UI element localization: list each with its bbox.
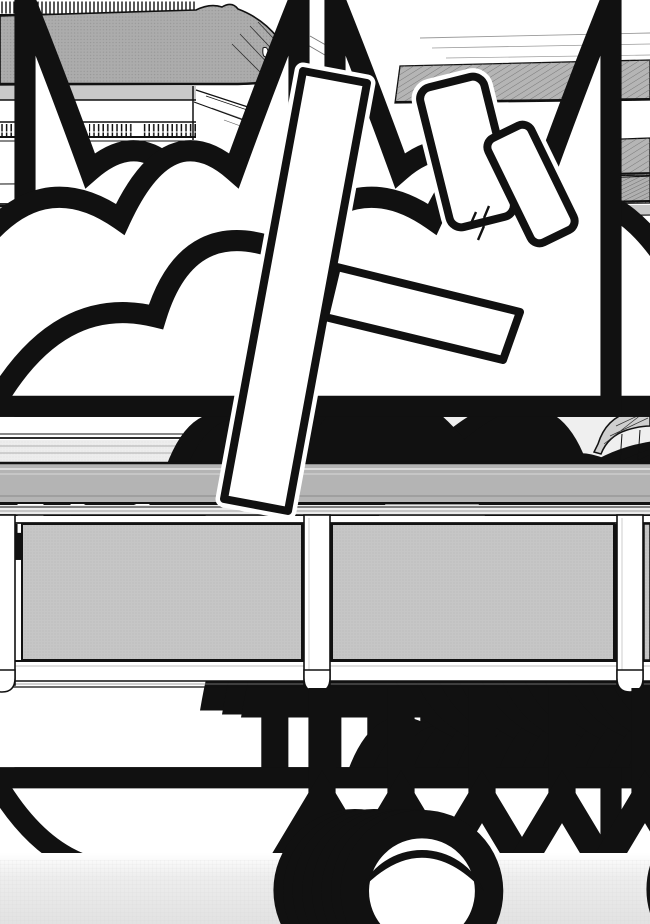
palace-scene bbox=[0, 0, 650, 924]
wall-pillar bbox=[0, 515, 15, 692]
manga-page: ド bbox=[0, 0, 650, 924]
wall-pillar bbox=[617, 515, 643, 692]
wall-pillar bbox=[304, 515, 330, 692]
wall-panel-sliver bbox=[644, 524, 650, 660]
